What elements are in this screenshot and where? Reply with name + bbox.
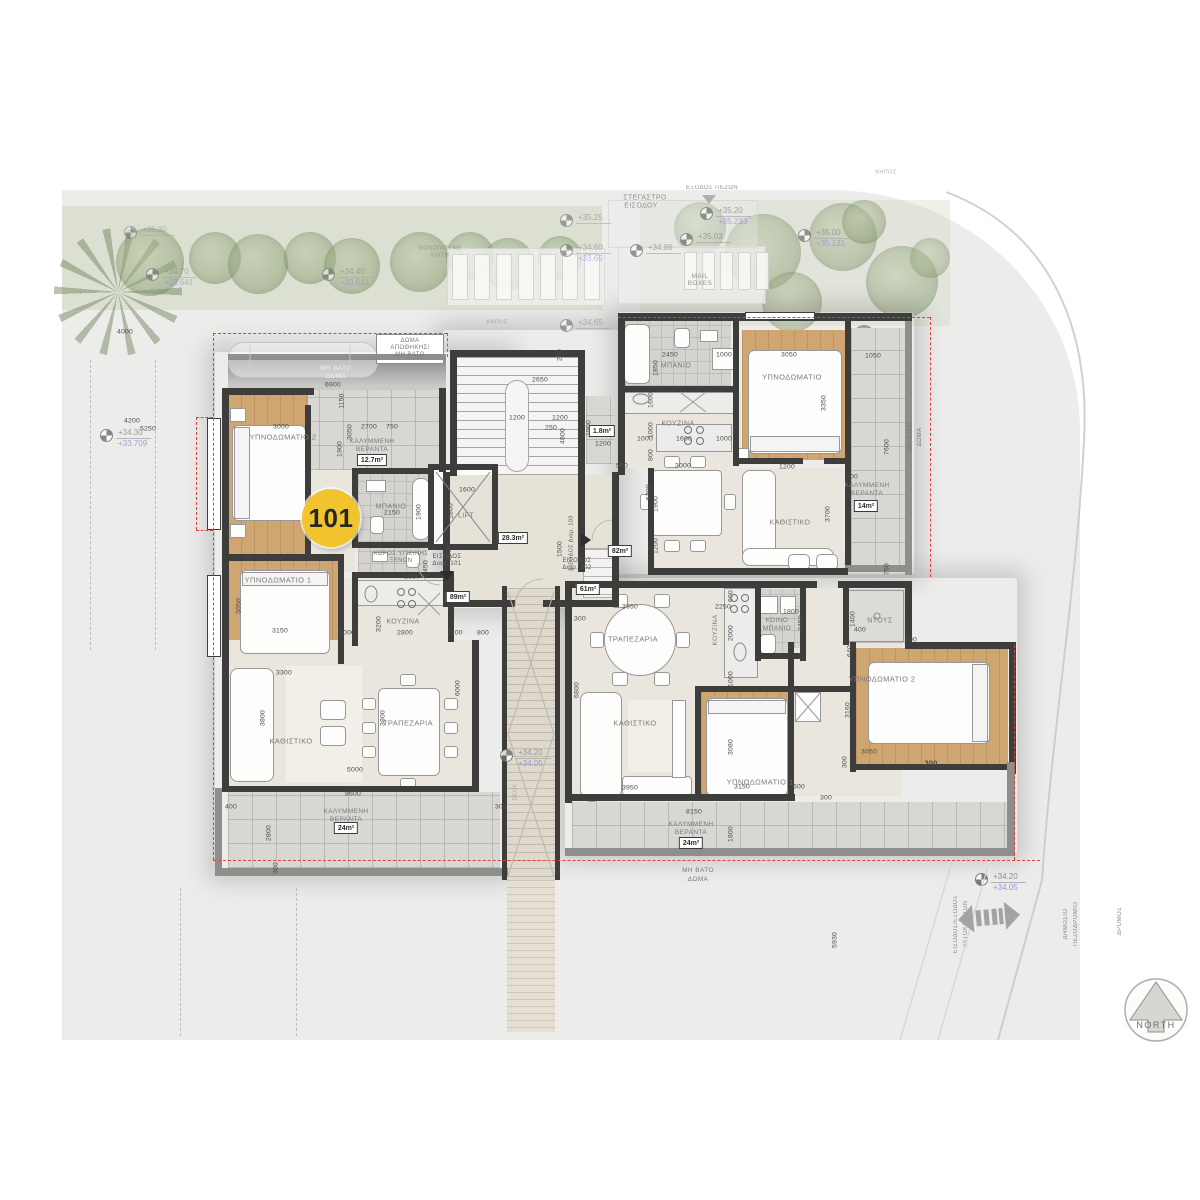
sidewalk-edge-lines [900,862,988,1040]
entry-arrow-103-icon [581,533,591,547]
entry-arrow-101-icon [440,571,454,581]
unit-number: 101 [309,503,354,534]
stove-burners [398,427,749,613]
cabinet-cross-marks [418,392,821,722]
sink-icons [365,394,880,661]
car-detail-lines [250,345,350,377]
car-entry-exit-arrow-icon [957,901,1021,934]
unit-number-badge[interactable]: 101 [302,489,360,547]
ramp-cross-hatch [508,592,554,876]
north-label: NORTH [1136,1020,1175,1030]
floor-plan-canvas: ΥΠΝΟΔΩΜΑΤΙΟ 2ΥΠΝΟΔΩΜΑΤΙΟ 1ΜΠΑΝΙΟLIFTΧΩΡΟ… [0,0,1200,1200]
door-swing-arcs [418,520,612,607]
lift-cross [436,472,490,542]
linework-layer [0,0,1200,1200]
north-indicator: NORTH [1120,976,1196,1052]
pedestrian-exit-arrow-icon [702,195,716,204]
